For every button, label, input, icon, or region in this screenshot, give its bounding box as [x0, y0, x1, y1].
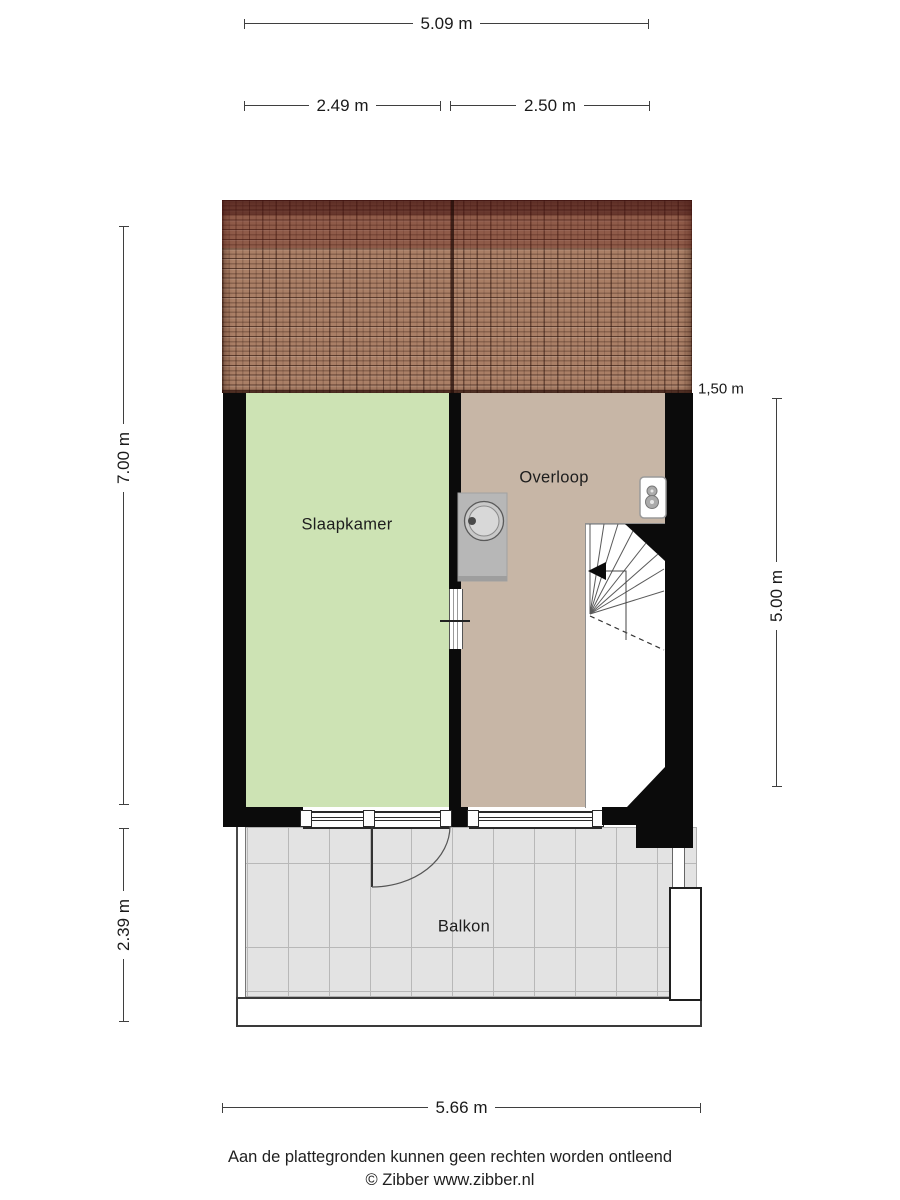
room-label-balcony: Balkon [438, 918, 490, 937]
dimension-right: 5.00 m [776, 398, 777, 787]
knee-wall-height-label: 1,50 m [698, 381, 744, 398]
stairs-headroom-dashed-line [590, 616, 664, 650]
stairs-direction-arrow-icon [588, 562, 606, 580]
footer: Aan de plattegronden kunnen geen rechten… [0, 1146, 900, 1192]
plan-vector-layer [0, 0, 900, 1200]
dimension-bottom-total: 5.66 m [222, 1107, 701, 1108]
dimension-label: 2.39 m [114, 891, 134, 959]
dimension-left-upper: 7.00 m [123, 226, 124, 805]
dimension-label: 7.00 m [114, 424, 134, 492]
footer-copyright: © Zibber www.zibber.nl [0, 1169, 900, 1192]
dimension-top-total: 5.09 m [244, 23, 649, 24]
floor-plan-canvas: Slaapkamer Overloop Balkon 5.09 m 2.49 m… [0, 0, 900, 1200]
door-swing-icon [372, 826, 450, 887]
wall-right [602, 393, 693, 848]
room-label-bedroom: Slaapkamer [301, 516, 392, 535]
sink-icon [458, 493, 507, 581]
dimension-label: 2.50 m [516, 96, 584, 116]
stairwell-corner-wall [625, 524, 665, 561]
ventilation-unit-icon [640, 477, 666, 518]
dimension-label: 5.09 m [413, 14, 481, 34]
footer-disclaimer: Aan de plattegronden kunnen geen rechten… [0, 1146, 900, 1169]
room-label-landing: Overloop [519, 469, 588, 488]
dimension-label: 2.49 m [309, 96, 377, 116]
dimension-top-right: 2.50 m [450, 105, 650, 106]
dimension-left-lower: 2.39 m [123, 828, 124, 1022]
dimension-label: 5.66 m [428, 1098, 496, 1118]
dimension-top-left: 2.49 m [244, 105, 441, 106]
dimension-label: 5.00 m [767, 562, 787, 630]
